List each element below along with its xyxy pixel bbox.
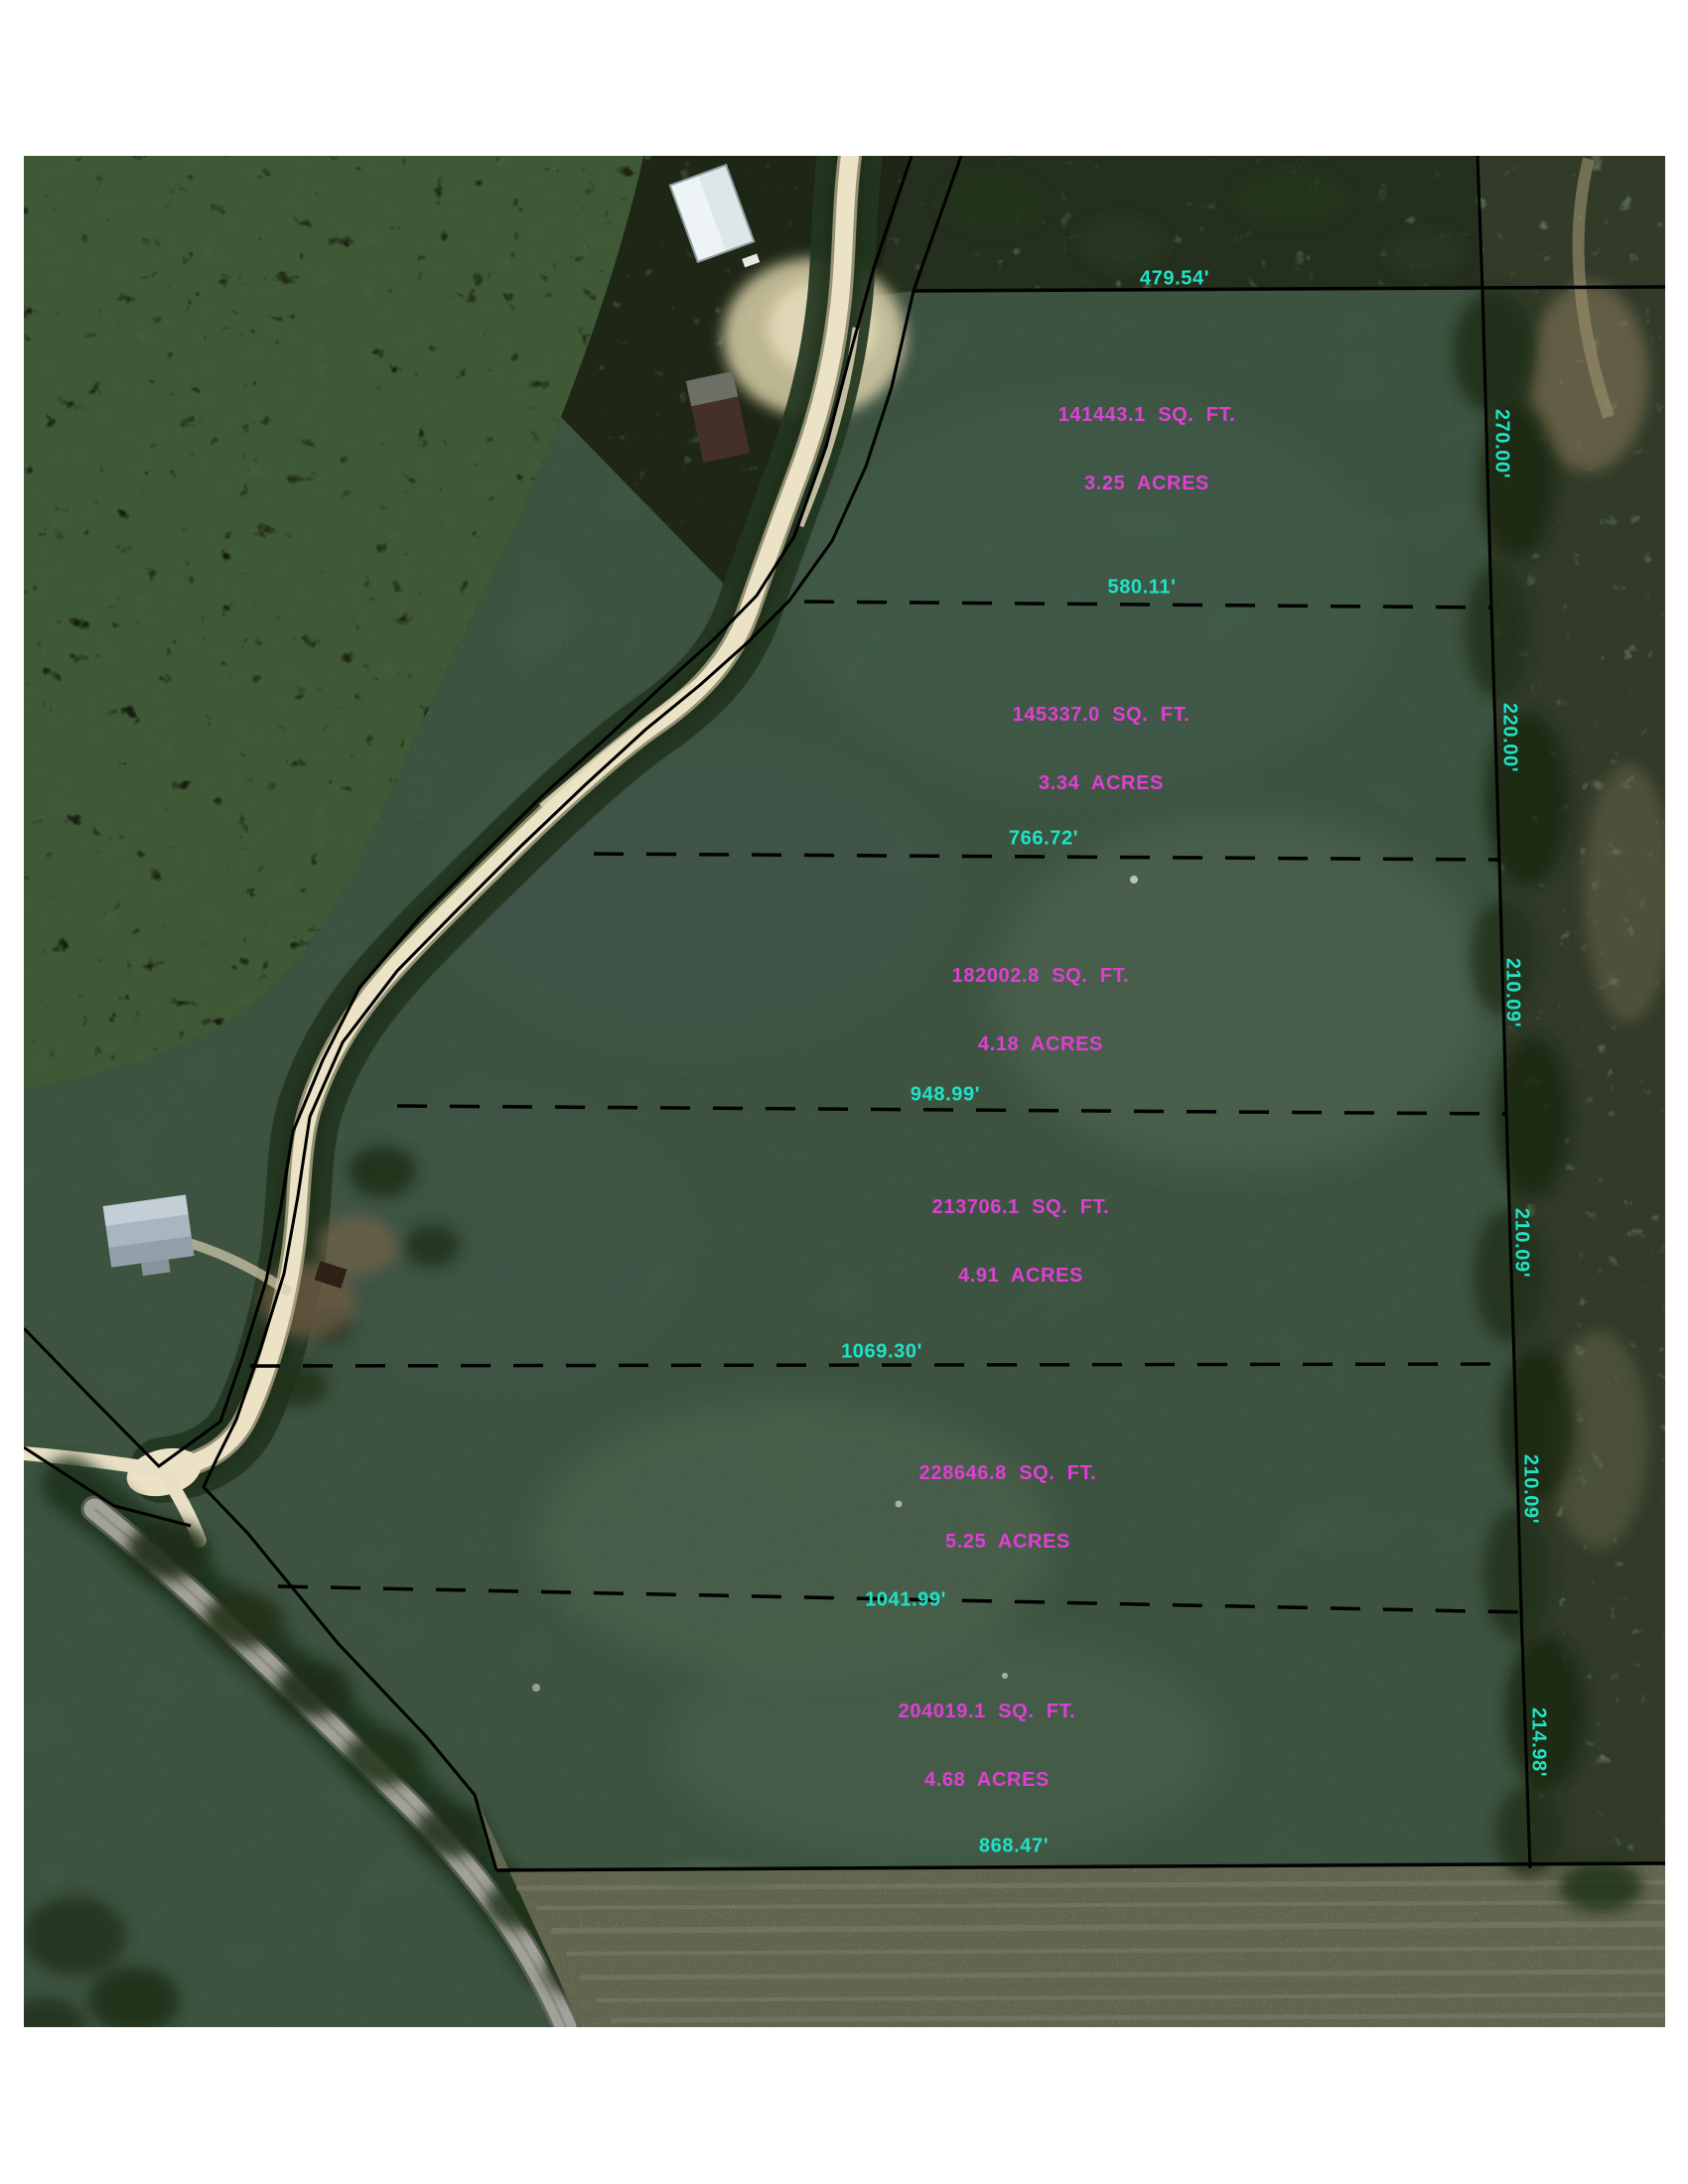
east-segment-label-3: 210.09': [1501, 958, 1524, 1027]
parcel-acres: 3.25 ACRES: [1058, 473, 1236, 495]
south-length-label: 868.47': [979, 1836, 1049, 1858]
east-segment-label-5: 210.09': [1519, 1454, 1542, 1524]
parcel-sqft: 145337.0 SQ. FT.: [1013, 704, 1191, 727]
east-segment-label-4: 210.09': [1510, 1208, 1533, 1278]
parcel-sqft: 141443.1 SQ. FT.: [1058, 404, 1236, 427]
parcel-acres: 4.18 ACRES: [952, 1033, 1130, 1056]
division-length-label-1: 580.11': [1107, 577, 1176, 600]
north-length-label: 479.54': [1140, 268, 1209, 291]
parcel-label-3: 182002.8 SQ. FT. 4.18 ACRES: [952, 919, 1130, 1102]
east-segment-label-6: 214.98': [1527, 1707, 1550, 1777]
parcel-sqft: 182002.8 SQ. FT.: [952, 965, 1130, 988]
parcel-label-1: 141443.1 SQ. FT. 3.25 ACRES: [1058, 358, 1236, 541]
parcel-label-5: 228646.8 SQ. FT. 5.25 ACRES: [919, 1417, 1097, 1599]
parcel-sqft: 213706.1 SQ. FT.: [932, 1196, 1110, 1219]
parcel-sqft: 204019.1 SQ. FT.: [899, 1701, 1076, 1723]
parcel-acres: 4.68 ACRES: [899, 1769, 1076, 1792]
parcel-acres: 5.25 ACRES: [919, 1531, 1097, 1554]
parcel-acres: 3.34 ACRES: [1013, 772, 1191, 795]
division-length-label-4: 1069.30': [841, 1341, 922, 1364]
east-segment-label-1: 270.00': [1490, 409, 1513, 478]
parcel-label-4: 213706.1 SQ. FT. 4.91 ACRES: [932, 1151, 1110, 1333]
terrain-graphics: [24, 156, 1665, 2027]
parcel-sqft: 228646.8 SQ. FT.: [919, 1462, 1097, 1485]
parcel-label-6: 204019.1 SQ. FT. 4.68 ACRES: [899, 1655, 1076, 1838]
east-segment-label-2: 220.00': [1498, 703, 1521, 772]
parcel-label-2: 145337.0 SQ. FT. 3.34 ACRES: [1013, 658, 1191, 841]
plat-page: 479.54' 580.11' 766.72' 948.99' 1069.30'…: [0, 0, 1688, 2184]
satellite-map: 479.54' 580.11' 766.72' 948.99' 1069.30'…: [24, 156, 1665, 2027]
parcel-acres: 4.91 ACRES: [932, 1265, 1110, 1288]
